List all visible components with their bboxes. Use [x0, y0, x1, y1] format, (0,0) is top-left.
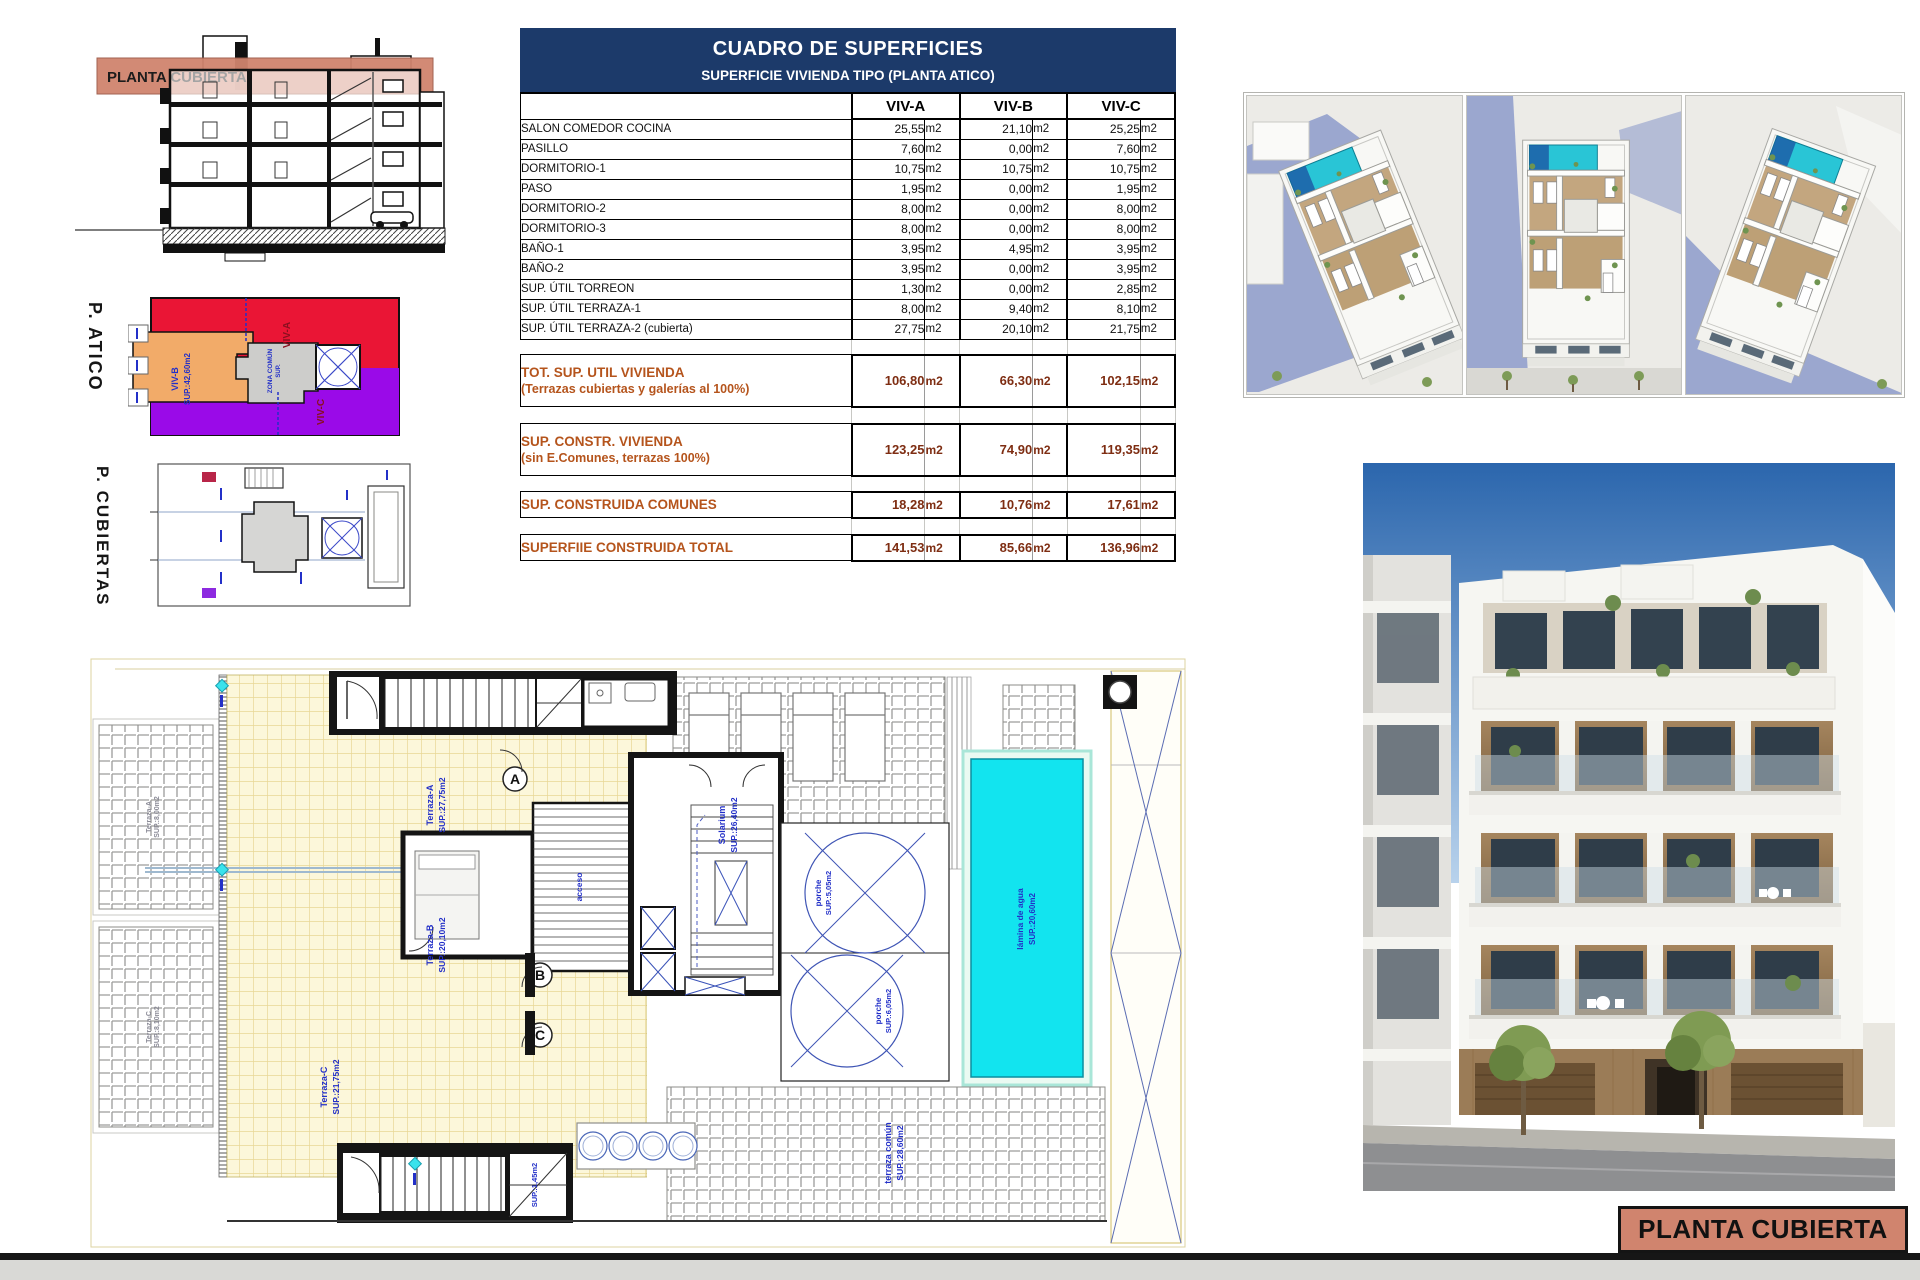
svg-text:SUP.:20,10m2: SUP.:20,10m2 — [437, 917, 447, 972]
svg-text:SUP.:1,45m2: SUP.:1,45m2 — [530, 1163, 539, 1207]
table-row: DORMITORIO-38,00m20,00m28,00m2 — [521, 219, 1176, 239]
sheet-title-text: PLANTA CUBIERTA — [1638, 1214, 1888, 1245]
svg-text:SUP.:28,60m2: SUP.:28,60m2 — [895, 1125, 905, 1180]
roof-plan: Terraza-A SUP.:8,00m2 Terraza-C SUP.:8,1… — [85, 655, 1197, 1253]
svg-text:B: B — [535, 967, 545, 983]
atico-zona-comun-label: ZONA COMÚN — [265, 348, 274, 393]
garage-door-right — [1731, 1063, 1843, 1115]
svg-text:SUP.:6,05m2: SUP.:6,05m2 — [884, 989, 893, 1033]
svg-text:Terraza-A: Terraza-A — [146, 801, 153, 833]
summary-row-total-util: TOT. SUP. UTIL VIVIENDA(Terrazas cubiert… — [521, 355, 1176, 407]
render-3 — [1686, 96, 1902, 395]
neighbour-building-left — [1363, 555, 1451, 1125]
svg-text:SUP.:26,40m2: SUP.:26,40m2 — [729, 797, 739, 852]
svg-text:A: A — [510, 771, 520, 787]
summary-row-constr-vivienda: SUP. CONSTR. VIVIENDA(sin E.Comunes, ter… — [521, 424, 1176, 476]
plan-sheet: PLANTA CUBIERTA — [0, 0, 1920, 1280]
svg-text:SUP.:5,05m2: SUP.:5,05m2 — [824, 871, 833, 915]
pergola-terrace-top: Terraza-A SUP.:8,00m2 — [93, 719, 219, 915]
svg-text:porche: porche — [814, 879, 823, 906]
column-header-viv-a: VIV-A — [852, 93, 960, 119]
surfaces-table: CUADRO DE SUPERFICIES SUPERFICIE VIVIEND… — [520, 28, 1176, 562]
table-header: CUADRO DE SUPERFICIES SUPERFICIE VIVIEND… — [520, 28, 1176, 92]
svg-text:C: C — [535, 1027, 545, 1043]
svg-text:porche: porche — [874, 997, 883, 1024]
svg-text:SUP.:27,75m2: SUP.:27,75m2 — [437, 777, 447, 832]
bottom-stair-block: SUP.:1,45m2 — [337, 1143, 573, 1223]
pool: lámina de agua SUP.:20,60m2 — [963, 751, 1091, 1085]
access-ramp: acceso — [533, 803, 631, 971]
pergola-terrace-bottom: Terraza-C SUP.:8,10m2 — [93, 921, 219, 1133]
table-subtitle: SUPERFICIE VIVIENDA TIPO (PLANTA ATICO) — [520, 66, 1176, 86]
balcony-floor-1 — [1469, 721, 1841, 815]
solarium-label: Solarium — [717, 806, 727, 845]
terraza-a-label: Terraza-A — [425, 784, 435, 825]
render-panel-1 — [1246, 95, 1463, 395]
table-row: SUP. ÚTIL TERRAZA-2 (cubierta)27,75m220,… — [521, 319, 1176, 339]
terraza-b-label: Terraza-B — [425, 924, 435, 965]
svg-text:Terraza-C: Terraza-C — [146, 1011, 153, 1043]
column-header-viv-c: VIV-C — [1067, 93, 1175, 119]
cubiertas-side-label: P. CUBIERTAS — [92, 466, 112, 616]
render-2 — [1467, 96, 1683, 395]
table-row: BAÑO-23,95m20,00m23,95m2 — [521, 259, 1176, 279]
table-title: CUADRO DE SUPERFICIES — [520, 32, 1176, 66]
water-tanks — [577, 1123, 697, 1169]
lift-cross-symbol — [316, 345, 360, 389]
svg-text:lámina de agua: lámina de agua — [1015, 888, 1025, 950]
render-panel-2 — [1466, 95, 1683, 395]
porche-circles: porche SUP.:5,05m2 porche SUP.:6,05m2 — [781, 823, 949, 1081]
render-1 — [1247, 96, 1463, 395]
column-header-viv-b: VIV-B — [960, 93, 1068, 119]
table-row: SALON COMEDOR COCINA25,55m221,10m225,25m… — [521, 119, 1176, 139]
bottom-rule — [0, 1253, 1920, 1260]
facade-photo — [1363, 463, 1903, 1191]
atico-zona-sup: SUP. — [276, 364, 282, 378]
summary-row-total: SUPERFIIE CONSTRUIDA TOTAL 141,53m2 85,6… — [521, 535, 1176, 561]
svg-text:SUP.:20,60m2: SUP.:20,60m2 — [1028, 893, 1037, 945]
balcony-floor-2 — [1469, 833, 1841, 927]
table-row: PASO1,95m20,00m21,95m2 — [521, 179, 1176, 199]
table-row: SUP. ÚTIL TORREON1,30m20,00m22,85m2 — [521, 279, 1176, 299]
atico-key-plan: VIV-A VIV-B SUP.:42,60m2 VIV-C ZONA COMÚ… — [128, 287, 420, 449]
table-row: DORMITORIO-28,00m20,00m28,00m2 — [521, 199, 1176, 219]
svg-text:acceso: acceso — [574, 873, 584, 902]
balcony-floor-3 — [1469, 945, 1841, 1039]
summary-row-comunes: SUP. CONSTRUIDA COMUNES 18,28m2 10,76m2 … — [521, 492, 1176, 518]
sheet-title-box: PLANTA CUBIERTA — [1618, 1206, 1908, 1253]
chimney-symbol — [1103, 675, 1137, 709]
atico-viv-a-label: VIV-A — [282, 322, 293, 348]
table-row: DORMITORIO-110,75m210,75m210,75m2 — [521, 159, 1176, 179]
terraza-comun-label: terraza común — [883, 1122, 893, 1184]
cubiertas-key-plan — [150, 460, 422, 612]
table-row: PASILLO7,60m20,00m27,60m2 — [521, 139, 1176, 159]
atico-viv-b-sup: SUP.:42,60m2 — [183, 353, 192, 405]
atico-viv-c-label: VIV-C — [316, 399, 327, 425]
aerial-renders-strip — [1243, 92, 1905, 398]
render-panel-3 — [1685, 95, 1902, 395]
building-section-drawing: PLANTA CUBIERTA — [75, 30, 505, 272]
top-stair-block — [329, 671, 677, 735]
table-row: BAÑO-13,95m24,95m23,95m2 — [521, 239, 1176, 259]
atico-side-label: P. ATICO — [84, 302, 105, 452]
crossed-strip — [1111, 671, 1181, 1243]
terraza-c-label: Terraza-C — [319, 1066, 329, 1107]
svg-text:SUP.:8,10m2: SUP.:8,10m2 — [154, 1006, 161, 1048]
surfaces-grid: VIV-A VIV-B VIV-C SALON COMEDOR COCINA25… — [520, 92, 1176, 562]
torreon-room — [403, 833, 533, 957]
core-block — [631, 755, 781, 995]
atico-viv-b-label: VIV-B — [170, 367, 180, 391]
bottom-strip — [0, 1260, 1920, 1280]
svg-text:SUP.:21,75m2: SUP.:21,75m2 — [331, 1059, 341, 1114]
table-row: SUP. ÚTIL TERRAZA-18,00m29,40m28,10m2 — [521, 299, 1176, 319]
svg-text:SUP.:8,00m2: SUP.:8,00m2 — [154, 796, 161, 838]
